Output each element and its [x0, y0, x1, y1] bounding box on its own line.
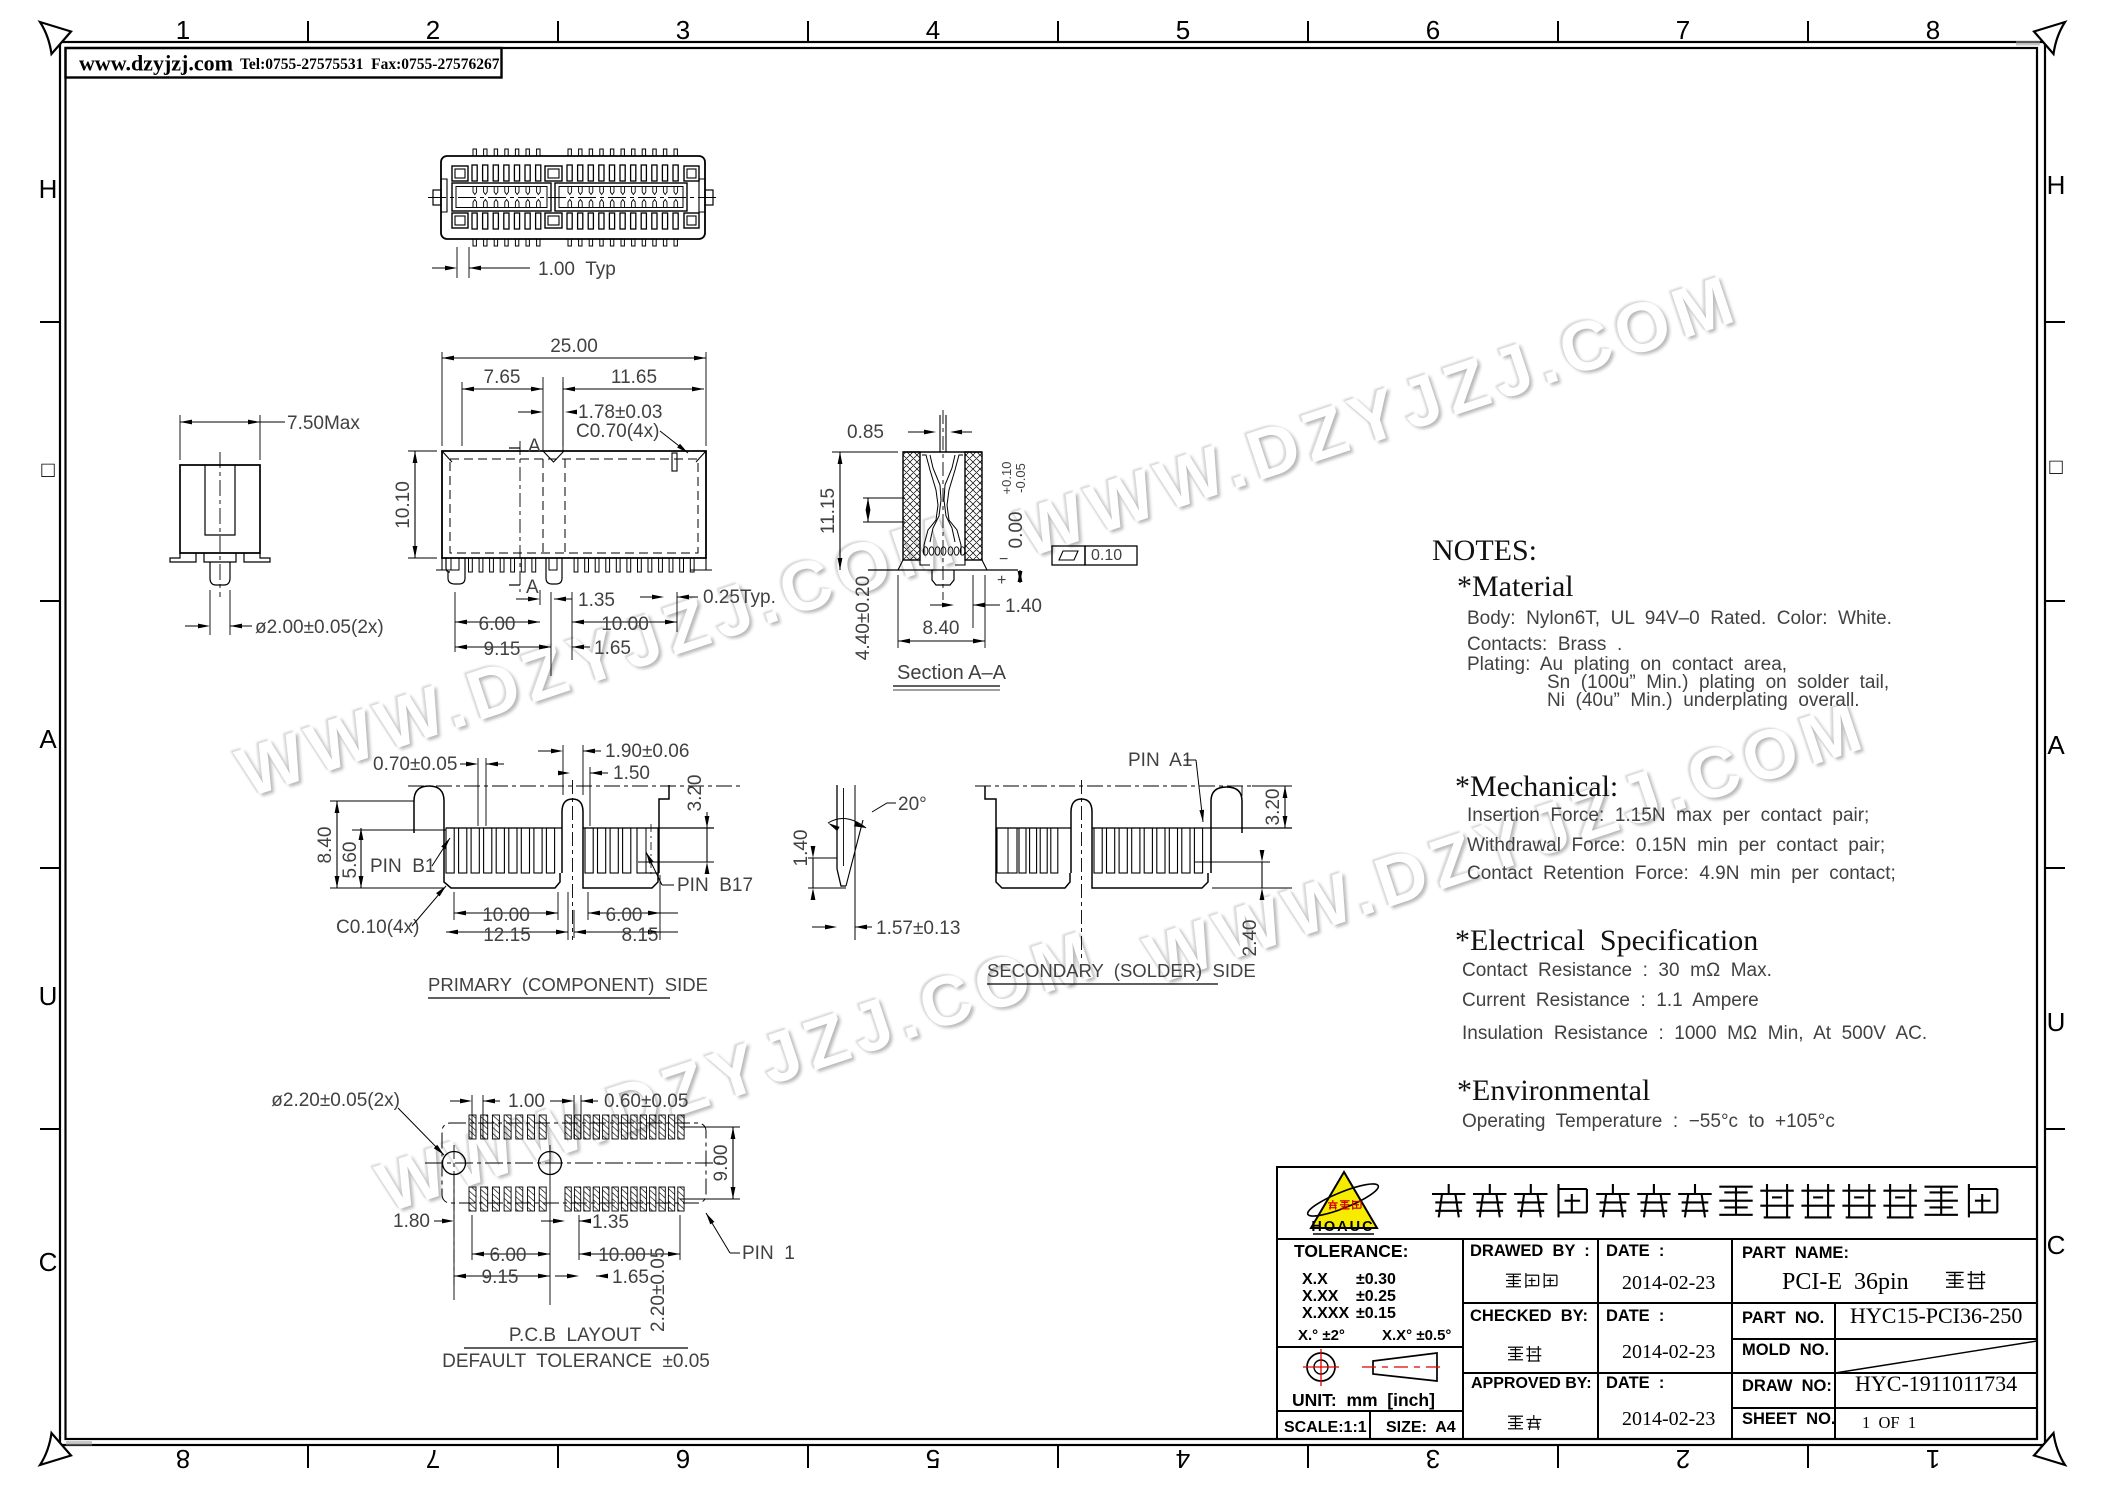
svg-text:6.00: 6.00 — [479, 614, 516, 635]
svg-text:X.XXX: X.XXX — [1302, 1305, 1349, 1322]
svg-text:Insulation Resistance : 100: Insulation Resistance : 1000 MΩ Min, At … — [1462, 1023, 1927, 1044]
svg-text:8: 8 — [176, 1444, 190, 1474]
svg-text:SCALE:1:1: SCALE:1:1 — [1284, 1419, 1367, 1436]
svg-text:*Mechanical:: *Mechanical: — [1455, 770, 1618, 803]
svg-text:PIN B17: PIN B17 — [677, 875, 753, 896]
svg-text:X.X° ±0.5°: X.X° ±0.5° — [1382, 1327, 1451, 1344]
svg-text:2014-02-23: 2014-02-23 — [1622, 1408, 1715, 1430]
svg-text:Contact Retention Force: 4.: Contact Retention Force: 4.9N min per co… — [1467, 863, 1896, 884]
svg-text:U: U — [39, 981, 58, 1011]
svg-text:5.60: 5.60 — [340, 842, 361, 879]
svg-text:SIZE: A4: SIZE: A4 — [1386, 1419, 1456, 1436]
svg-text:C: C — [39, 1247, 58, 1277]
svg-text:3.20: 3.20 — [685, 775, 706, 812]
svg-text:+0.10: +0.10 — [999, 462, 1014, 495]
svg-text:ø2.00±0.05(2x): ø2.00±0.05(2x) — [255, 617, 384, 638]
svg-text:1.40: 1.40 — [1005, 596, 1042, 617]
svg-text:1 OF 1: 1 OF 1 — [1862, 1413, 1916, 1432]
svg-text:DRAWED BY :: DRAWED BY : — [1470, 1242, 1590, 1260]
svg-text:Ni (40u” Min.) underplating: Ni (40u” Min.) underplating overall. — [1547, 690, 1860, 711]
svg-text:±0.30: ±0.30 — [1356, 1271, 1396, 1288]
svg-text:C: C — [2047, 1230, 2066, 1260]
svg-text:6: 6 — [1426, 15, 1440, 45]
svg-text:12.15: 12.15 — [483, 925, 531, 946]
svg-text:±0.25: ±0.25 — [1356, 1288, 1396, 1305]
svg-text:Contact Resistance : 30 mΩ: Contact Resistance : 30 mΩ Max. — [1462, 960, 1772, 981]
svg-text:P.C.B LAYOUT: P.C.B LAYOUT — [509, 1325, 642, 1346]
svg-text:1: 1 — [1926, 1444, 1940, 1474]
svg-text:0.60±0.05: 0.60±0.05 — [604, 1091, 688, 1112]
svg-text:DATE :: DATE : — [1606, 1374, 1664, 1392]
svg-text:PIN 1: PIN 1 — [742, 1243, 795, 1264]
svg-text:DEFAULT TOLERANCE ±0.05: DEFAULT TOLERANCE ±0.05 — [442, 1351, 710, 1372]
svg-text:2014-02-23: 2014-02-23 — [1622, 1272, 1715, 1294]
svg-text:NOTES:: NOTES: — [1432, 534, 1537, 567]
svg-text:5: 5 — [1176, 15, 1190, 45]
svg-text:10.00: 10.00 — [601, 614, 649, 635]
svg-text:6.00: 6.00 — [490, 1245, 527, 1266]
svg-text:1.00 Typ: 1.00 Typ — [538, 259, 616, 280]
svg-text:7.50Max: 7.50Max — [287, 413, 360, 434]
svg-text:1.57±0.13: 1.57±0.13 — [876, 918, 960, 939]
svg-text:H: H — [39, 174, 58, 204]
svg-text:9.15: 9.15 — [482, 1267, 519, 1288]
svg-text:C0.10(4x): C0.10(4x) — [336, 917, 419, 938]
svg-text:Withdrawal Force: 0.15N min: Withdrawal Force: 0.15N min per contact … — [1467, 835, 1885, 856]
svg-text:2.20±0.05: 2.20±0.05 — [648, 1248, 669, 1332]
svg-text:Insertion Force: 1.15N max: Insertion Force: 1.15N max per contact p… — [1467, 805, 1869, 826]
svg-text:www.dzyjzj.com: www.dzyjzj.com — [79, 51, 233, 76]
svg-text:10.10: 10.10 — [393, 481, 414, 529]
svg-text:11.65: 11.65 — [611, 367, 657, 388]
svg-text:*Material: *Material — [1457, 570, 1574, 603]
svg-text:PCI-E 36pin: PCI-E 36pin — [1782, 1269, 1909, 1295]
svg-text:Operating Temperature : −55: Operating Temperature : −55°c to +105°c — [1462, 1111, 1835, 1132]
svg-text:1.50: 1.50 — [613, 763, 650, 784]
svg-text:10.00: 10.00 — [598, 1245, 646, 1266]
svg-text:PIN B1: PIN B1 — [370, 856, 435, 877]
svg-text:A: A — [526, 577, 539, 598]
svg-text:0.70±0.05: 0.70±0.05 — [373, 754, 457, 775]
svg-text:0.85: 0.85 — [847, 422, 884, 443]
svg-text:PIN A1: PIN A1 — [1128, 750, 1192, 771]
svg-text:*Electrical Specification: *Electrical Specification — [1455, 924, 1758, 957]
svg-text:8.40: 8.40 — [923, 618, 960, 639]
svg-text:DATE :: DATE : — [1606, 1242, 1664, 1260]
svg-text:A: A — [528, 436, 541, 457]
svg-text:3.20: 3.20 — [1263, 789, 1284, 826]
svg-text:-0.05: -0.05 — [1013, 463, 1028, 493]
svg-text:11.15: 11.15 — [818, 488, 839, 534]
svg-text:ø2.20±0.05(2x): ø2.20±0.05(2x) — [271, 1090, 400, 1111]
svg-text:20°: 20° — [898, 794, 927, 815]
svg-text:U: U — [2047, 1007, 2066, 1037]
svg-text:TOLERANCE:: TOLERANCE: — [1294, 1241, 1408, 1261]
svg-text:2: 2 — [426, 15, 440, 45]
svg-text:HOAUC: HOAUC — [1311, 1219, 1374, 1235]
svg-text:1.00: 1.00 — [508, 1091, 545, 1112]
svg-text:PART NO.: PART NO. — [1742, 1309, 1824, 1327]
svg-text:8.40: 8.40 — [315, 827, 336, 864]
svg-text:HYC15-PCI36-250: HYC15-PCI36-250 — [1850, 1303, 2022, 1328]
svg-text:□: □ — [2049, 454, 2062, 479]
svg-text:C0.70(4x): C0.70(4x) — [576, 421, 659, 442]
svg-text:7: 7 — [1676, 15, 1690, 45]
svg-text:SECONDARY (SOLDER) SIDE: SECONDARY (SOLDER) SIDE — [987, 960, 1256, 981]
svg-text:1.65: 1.65 — [612, 1267, 649, 1288]
svg-text:8.15: 8.15 — [622, 925, 659, 946]
svg-text:*Environmental: *Environmental — [1457, 1074, 1650, 1107]
svg-text:Body: Nylon6T, UL 94V–0 Ra: Body: Nylon6T, UL 94V–0 Rated. Color: Wh… — [1467, 608, 1892, 629]
svg-text:4.40±0.20: 4.40±0.20 — [853, 576, 874, 660]
svg-text:1.35: 1.35 — [592, 1212, 629, 1233]
svg-text:2.40: 2.40 — [1240, 920, 1261, 957]
svg-text:UNIT: mm [inch]: UNIT: mm [inch] — [1292, 1390, 1435, 1410]
svg-text:Contacts: Brass .: Contacts: Brass . — [1467, 634, 1622, 655]
svg-text:7.65: 7.65 — [484, 367, 521, 388]
svg-text:6: 6 — [676, 1444, 690, 1474]
svg-text:DRAW NO:: DRAW NO: — [1742, 1377, 1832, 1395]
svg-text:5: 5 — [926, 1444, 940, 1474]
svg-text:7: 7 — [426, 1444, 440, 1474]
svg-text:CHECKED BY:: CHECKED BY: — [1470, 1307, 1588, 1325]
svg-text:2: 2 — [1676, 1444, 1690, 1474]
svg-text:8: 8 — [1926, 15, 1940, 45]
svg-text:A: A — [39, 724, 57, 754]
svg-text:1.65: 1.65 — [594, 638, 631, 659]
svg-text:X.XX: X.XX — [1302, 1288, 1339, 1305]
svg-text:3: 3 — [1426, 1444, 1440, 1474]
svg-text:X.X: X.X — [1302, 1271, 1328, 1288]
svg-text:−: − — [999, 551, 1008, 568]
svg-text:1.40: 1.40 — [791, 830, 812, 867]
svg-text:SHEET NO.: SHEET NO. — [1742, 1410, 1836, 1428]
svg-text:X.° ±2°: X.° ±2° — [1298, 1327, 1345, 1344]
svg-text:6.00: 6.00 — [606, 905, 643, 926]
svg-text:±0.15: ±0.15 — [1356, 1305, 1396, 1322]
svg-text:10.00: 10.00 — [482, 905, 530, 926]
svg-text:Current Resistance : 1.1 A: Current Resistance : 1.1 Ampere — [1462, 990, 1759, 1011]
svg-text:+: + — [997, 572, 1006, 589]
svg-text:1.90±0.06: 1.90±0.06 — [605, 741, 689, 762]
svg-text:1: 1 — [176, 15, 190, 45]
svg-text:3: 3 — [676, 15, 690, 45]
svg-text:DATE :: DATE : — [1606, 1307, 1664, 1325]
svg-text:1.35: 1.35 — [578, 590, 615, 611]
svg-text:4: 4 — [926, 15, 940, 45]
svg-text:□: □ — [41, 457, 54, 482]
svg-text:25.00: 25.00 — [550, 336, 598, 357]
svg-text:2014-02-23: 2014-02-23 — [1622, 1341, 1715, 1363]
svg-text:Tel:0755-27575531 Fax:0755-27: Tel:0755-27575531 Fax:0755-27576267 — [240, 56, 500, 73]
svg-text:0.10: 0.10 — [1091, 547, 1122, 564]
svg-text:9.00: 9.00 — [711, 1145, 732, 1182]
svg-text:H: H — [2047, 170, 2066, 200]
svg-text:4: 4 — [1176, 1444, 1190, 1474]
svg-text:A: A — [2047, 730, 2065, 760]
svg-text:9.15: 9.15 — [484, 639, 521, 660]
svg-text:1.80: 1.80 — [393, 1211, 430, 1232]
svg-text:PART NAME:: PART NAME: — [1742, 1244, 1849, 1262]
svg-text:0.25Typ.: 0.25Typ. — [703, 587, 776, 608]
svg-text:MOLD NO.: MOLD NO. — [1742, 1341, 1829, 1359]
svg-text:HYC-1911011734: HYC-1911011734 — [1855, 1371, 2017, 1396]
svg-text:APPROVED BY:: APPROVED BY: — [1471, 1375, 1592, 1392]
svg-text:PRIMARY (COMPONENT) SIDE: PRIMARY (COMPONENT) SIDE — [428, 974, 708, 995]
svg-text:1.78±0.03: 1.78±0.03 — [578, 402, 662, 423]
svg-text:0.00: 0.00 — [1006, 512, 1027, 549]
svg-text:Section A–A: Section A–A — [897, 662, 1007, 684]
